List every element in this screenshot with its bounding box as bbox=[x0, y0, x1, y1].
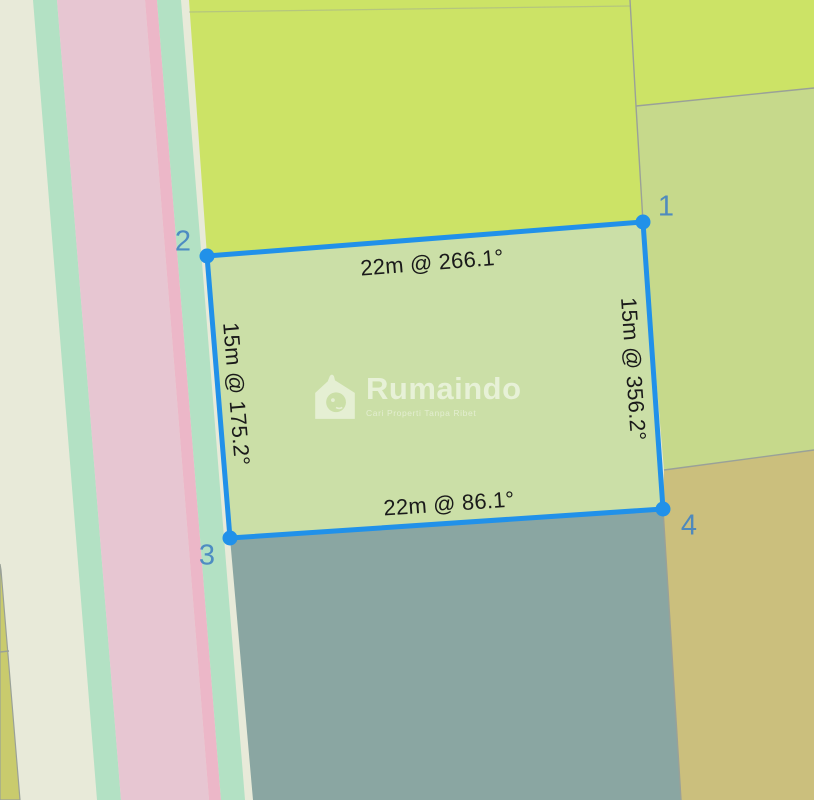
vertex-handle-1[interactable] bbox=[636, 215, 651, 230]
field-dark-teal bbox=[230, 509, 681, 800]
map-canvas[interactable] bbox=[0, 0, 814, 800]
vertex-handle-2[interactable] bbox=[200, 249, 215, 264]
corner-label-4: 4 bbox=[681, 510, 697, 543]
corner-label-3: 3 bbox=[199, 540, 215, 573]
field-olive-green bbox=[636, 88, 814, 470]
vertex-handle-3[interactable] bbox=[223, 531, 238, 546]
vertex-handle-4[interactable] bbox=[656, 502, 671, 517]
map-view: Rumaindo Cari Properti Tanpa Ribet 22m @… bbox=[0, 0, 814, 800]
boundary-line-yellow-divider bbox=[0, 651, 9, 652]
corner-label-2: 2 bbox=[175, 226, 191, 259]
corner-label-1: 1 bbox=[658, 191, 674, 224]
field-tan bbox=[663, 450, 814, 800]
